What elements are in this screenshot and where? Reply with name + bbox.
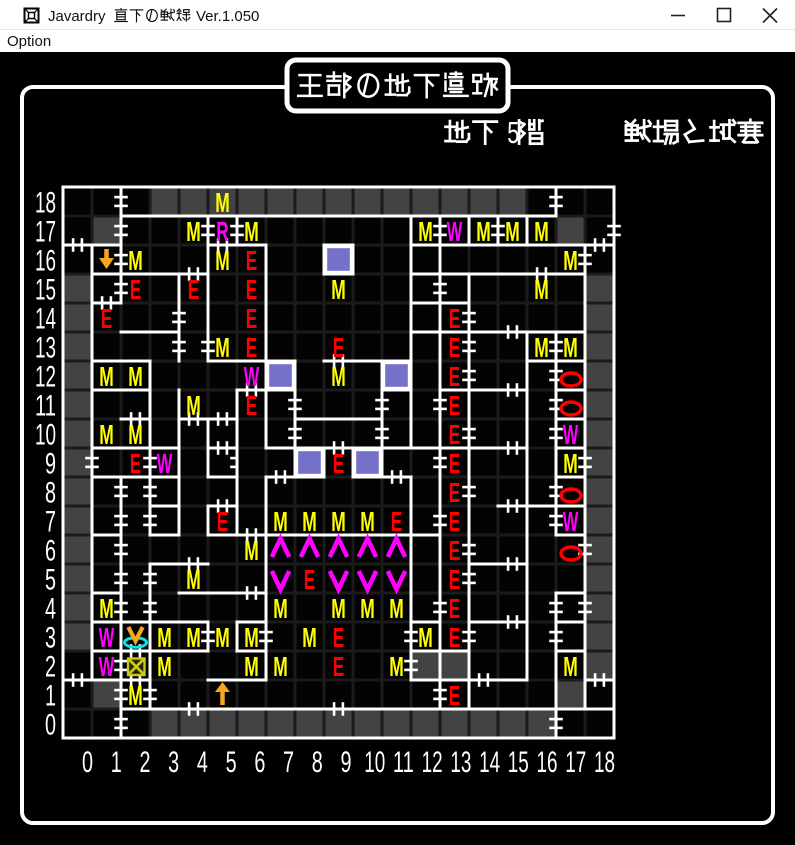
svg-text:E: E bbox=[246, 245, 258, 276]
svg-text:M: M bbox=[99, 593, 114, 624]
svg-text:W: W bbox=[447, 216, 463, 247]
svg-text:17: 17 bbox=[35, 216, 56, 249]
svg-text:W: W bbox=[157, 448, 173, 479]
svg-text:8: 8 bbox=[312, 746, 323, 779]
svg-text:M: M bbox=[418, 216, 433, 247]
svg-text:5: 5 bbox=[226, 746, 237, 779]
svg-text:6: 6 bbox=[45, 535, 56, 568]
svg-text:M: M bbox=[331, 361, 346, 392]
svg-text:5: 5 bbox=[507, 115, 519, 150]
svg-text:M: M bbox=[389, 651, 404, 682]
svg-text:M: M bbox=[302, 622, 317, 653]
svg-text:E: E bbox=[449, 477, 461, 508]
svg-text:10: 10 bbox=[35, 419, 56, 452]
svg-text:M: M bbox=[302, 506, 317, 537]
svg-text:8: 8 bbox=[45, 477, 56, 510]
svg-text:17: 17 bbox=[565, 746, 586, 779]
svg-text:13: 13 bbox=[450, 746, 471, 779]
svg-text:M: M bbox=[215, 622, 230, 653]
svg-text:M: M bbox=[534, 274, 549, 305]
svg-text:M: M bbox=[534, 332, 549, 363]
svg-text:E: E bbox=[391, 506, 403, 537]
svg-text:M: M bbox=[99, 419, 114, 450]
svg-text:14: 14 bbox=[35, 303, 56, 336]
svg-text:5: 5 bbox=[45, 564, 56, 597]
svg-text:M: M bbox=[128, 419, 143, 450]
svg-text:E: E bbox=[449, 535, 461, 566]
svg-text:M: M bbox=[128, 680, 143, 711]
svg-text:4: 4 bbox=[45, 593, 56, 626]
svg-text:12: 12 bbox=[35, 361, 56, 394]
svg-text:M: M bbox=[360, 593, 375, 624]
svg-text:M: M bbox=[186, 622, 201, 653]
svg-text:M: M bbox=[389, 593, 404, 624]
svg-text:W: W bbox=[563, 506, 579, 537]
svg-text:E: E bbox=[449, 419, 461, 450]
svg-text:E: E bbox=[130, 448, 142, 479]
svg-text:E: E bbox=[304, 564, 316, 595]
svg-text:E: E bbox=[449, 680, 461, 711]
svg-text:1: 1 bbox=[111, 746, 122, 779]
svg-text:M: M bbox=[476, 216, 491, 247]
svg-text:M: M bbox=[360, 506, 375, 537]
svg-text:R: R bbox=[216, 216, 229, 247]
svg-text:E: E bbox=[130, 274, 142, 305]
svg-text:1: 1 bbox=[45, 680, 56, 713]
svg-text:M: M bbox=[215, 245, 230, 276]
svg-text:Option: Option bbox=[7, 33, 51, 50]
svg-text:E: E bbox=[333, 332, 345, 363]
svg-text:Ver.1.050: Ver.1.050 bbox=[196, 8, 259, 25]
svg-text:16: 16 bbox=[35, 245, 56, 278]
svg-text:10: 10 bbox=[364, 746, 385, 779]
svg-text:M: M bbox=[331, 274, 346, 305]
svg-text:0: 0 bbox=[82, 746, 93, 779]
svg-text:E: E bbox=[188, 274, 200, 305]
svg-text:E: E bbox=[449, 303, 461, 334]
svg-text:E: E bbox=[333, 622, 345, 653]
svg-text:M: M bbox=[157, 622, 172, 653]
svg-text:M: M bbox=[186, 390, 201, 421]
svg-text:E: E bbox=[449, 448, 461, 479]
svg-text:E: E bbox=[217, 506, 229, 537]
svg-text:M: M bbox=[244, 651, 259, 682]
svg-text:M: M bbox=[273, 651, 288, 682]
svg-text:M: M bbox=[563, 332, 578, 363]
svg-text:7: 7 bbox=[283, 746, 294, 779]
svg-text:E: E bbox=[246, 274, 258, 305]
svg-text:E: E bbox=[449, 593, 461, 624]
svg-text:2: 2 bbox=[45, 651, 56, 684]
svg-text:M: M bbox=[331, 506, 346, 537]
svg-text:M: M bbox=[244, 535, 259, 566]
svg-text:12: 12 bbox=[422, 746, 443, 779]
svg-text:M: M bbox=[244, 622, 259, 653]
svg-text:M: M bbox=[505, 216, 520, 247]
svg-text:E: E bbox=[333, 651, 345, 682]
svg-text:15: 15 bbox=[35, 274, 56, 307]
svg-text:W: W bbox=[244, 361, 260, 392]
svg-text:16: 16 bbox=[537, 746, 558, 779]
svg-text:W: W bbox=[99, 651, 115, 682]
svg-text:E: E bbox=[449, 506, 461, 537]
svg-text:3: 3 bbox=[45, 622, 56, 655]
svg-text:14: 14 bbox=[479, 746, 500, 779]
svg-text:0: 0 bbox=[45, 709, 56, 742]
svg-text:9: 9 bbox=[340, 746, 351, 779]
svg-text:M: M bbox=[563, 245, 578, 276]
svg-text:7: 7 bbox=[45, 506, 56, 539]
svg-text:M: M bbox=[157, 651, 172, 682]
svg-text:18: 18 bbox=[594, 746, 615, 779]
svg-text:M: M bbox=[418, 622, 433, 653]
svg-text:M: M bbox=[186, 216, 201, 247]
svg-text:15: 15 bbox=[508, 746, 529, 779]
svg-text:E: E bbox=[449, 361, 461, 392]
svg-text:M: M bbox=[186, 564, 201, 595]
svg-text:M: M bbox=[331, 593, 346, 624]
svg-text:M: M bbox=[128, 361, 143, 392]
svg-text:2: 2 bbox=[139, 746, 150, 779]
svg-text:E: E bbox=[449, 332, 461, 363]
svg-text:W: W bbox=[563, 419, 579, 450]
svg-text:E: E bbox=[333, 448, 345, 479]
svg-text:E: E bbox=[246, 332, 258, 363]
svg-text:M: M bbox=[273, 506, 288, 537]
svg-text:6: 6 bbox=[254, 746, 265, 779]
svg-text:E: E bbox=[246, 390, 258, 421]
svg-text:M: M bbox=[99, 361, 114, 392]
svg-text:13: 13 bbox=[35, 332, 56, 365]
svg-text:M: M bbox=[534, 216, 549, 247]
svg-text:M: M bbox=[244, 216, 259, 247]
svg-text:M: M bbox=[563, 448, 578, 479]
svg-text:W: W bbox=[99, 622, 115, 653]
svg-text:4: 4 bbox=[197, 746, 208, 779]
svg-text:3: 3 bbox=[168, 746, 179, 779]
svg-text:18: 18 bbox=[35, 187, 56, 220]
svg-text:E: E bbox=[101, 303, 113, 334]
svg-text:E: E bbox=[449, 564, 461, 595]
svg-text:E: E bbox=[246, 303, 258, 334]
svg-text:E: E bbox=[449, 390, 461, 421]
svg-text:11: 11 bbox=[393, 746, 414, 779]
svg-text:Javardry: Javardry bbox=[48, 8, 106, 25]
svg-text:M: M bbox=[215, 187, 230, 218]
svg-text:M: M bbox=[128, 245, 143, 276]
svg-text:E: E bbox=[449, 622, 461, 653]
svg-text:M: M bbox=[273, 593, 288, 624]
svg-text:M: M bbox=[563, 651, 578, 682]
svg-text:9: 9 bbox=[45, 448, 56, 481]
svg-text:11: 11 bbox=[35, 390, 56, 423]
svg-text:M: M bbox=[215, 332, 230, 363]
